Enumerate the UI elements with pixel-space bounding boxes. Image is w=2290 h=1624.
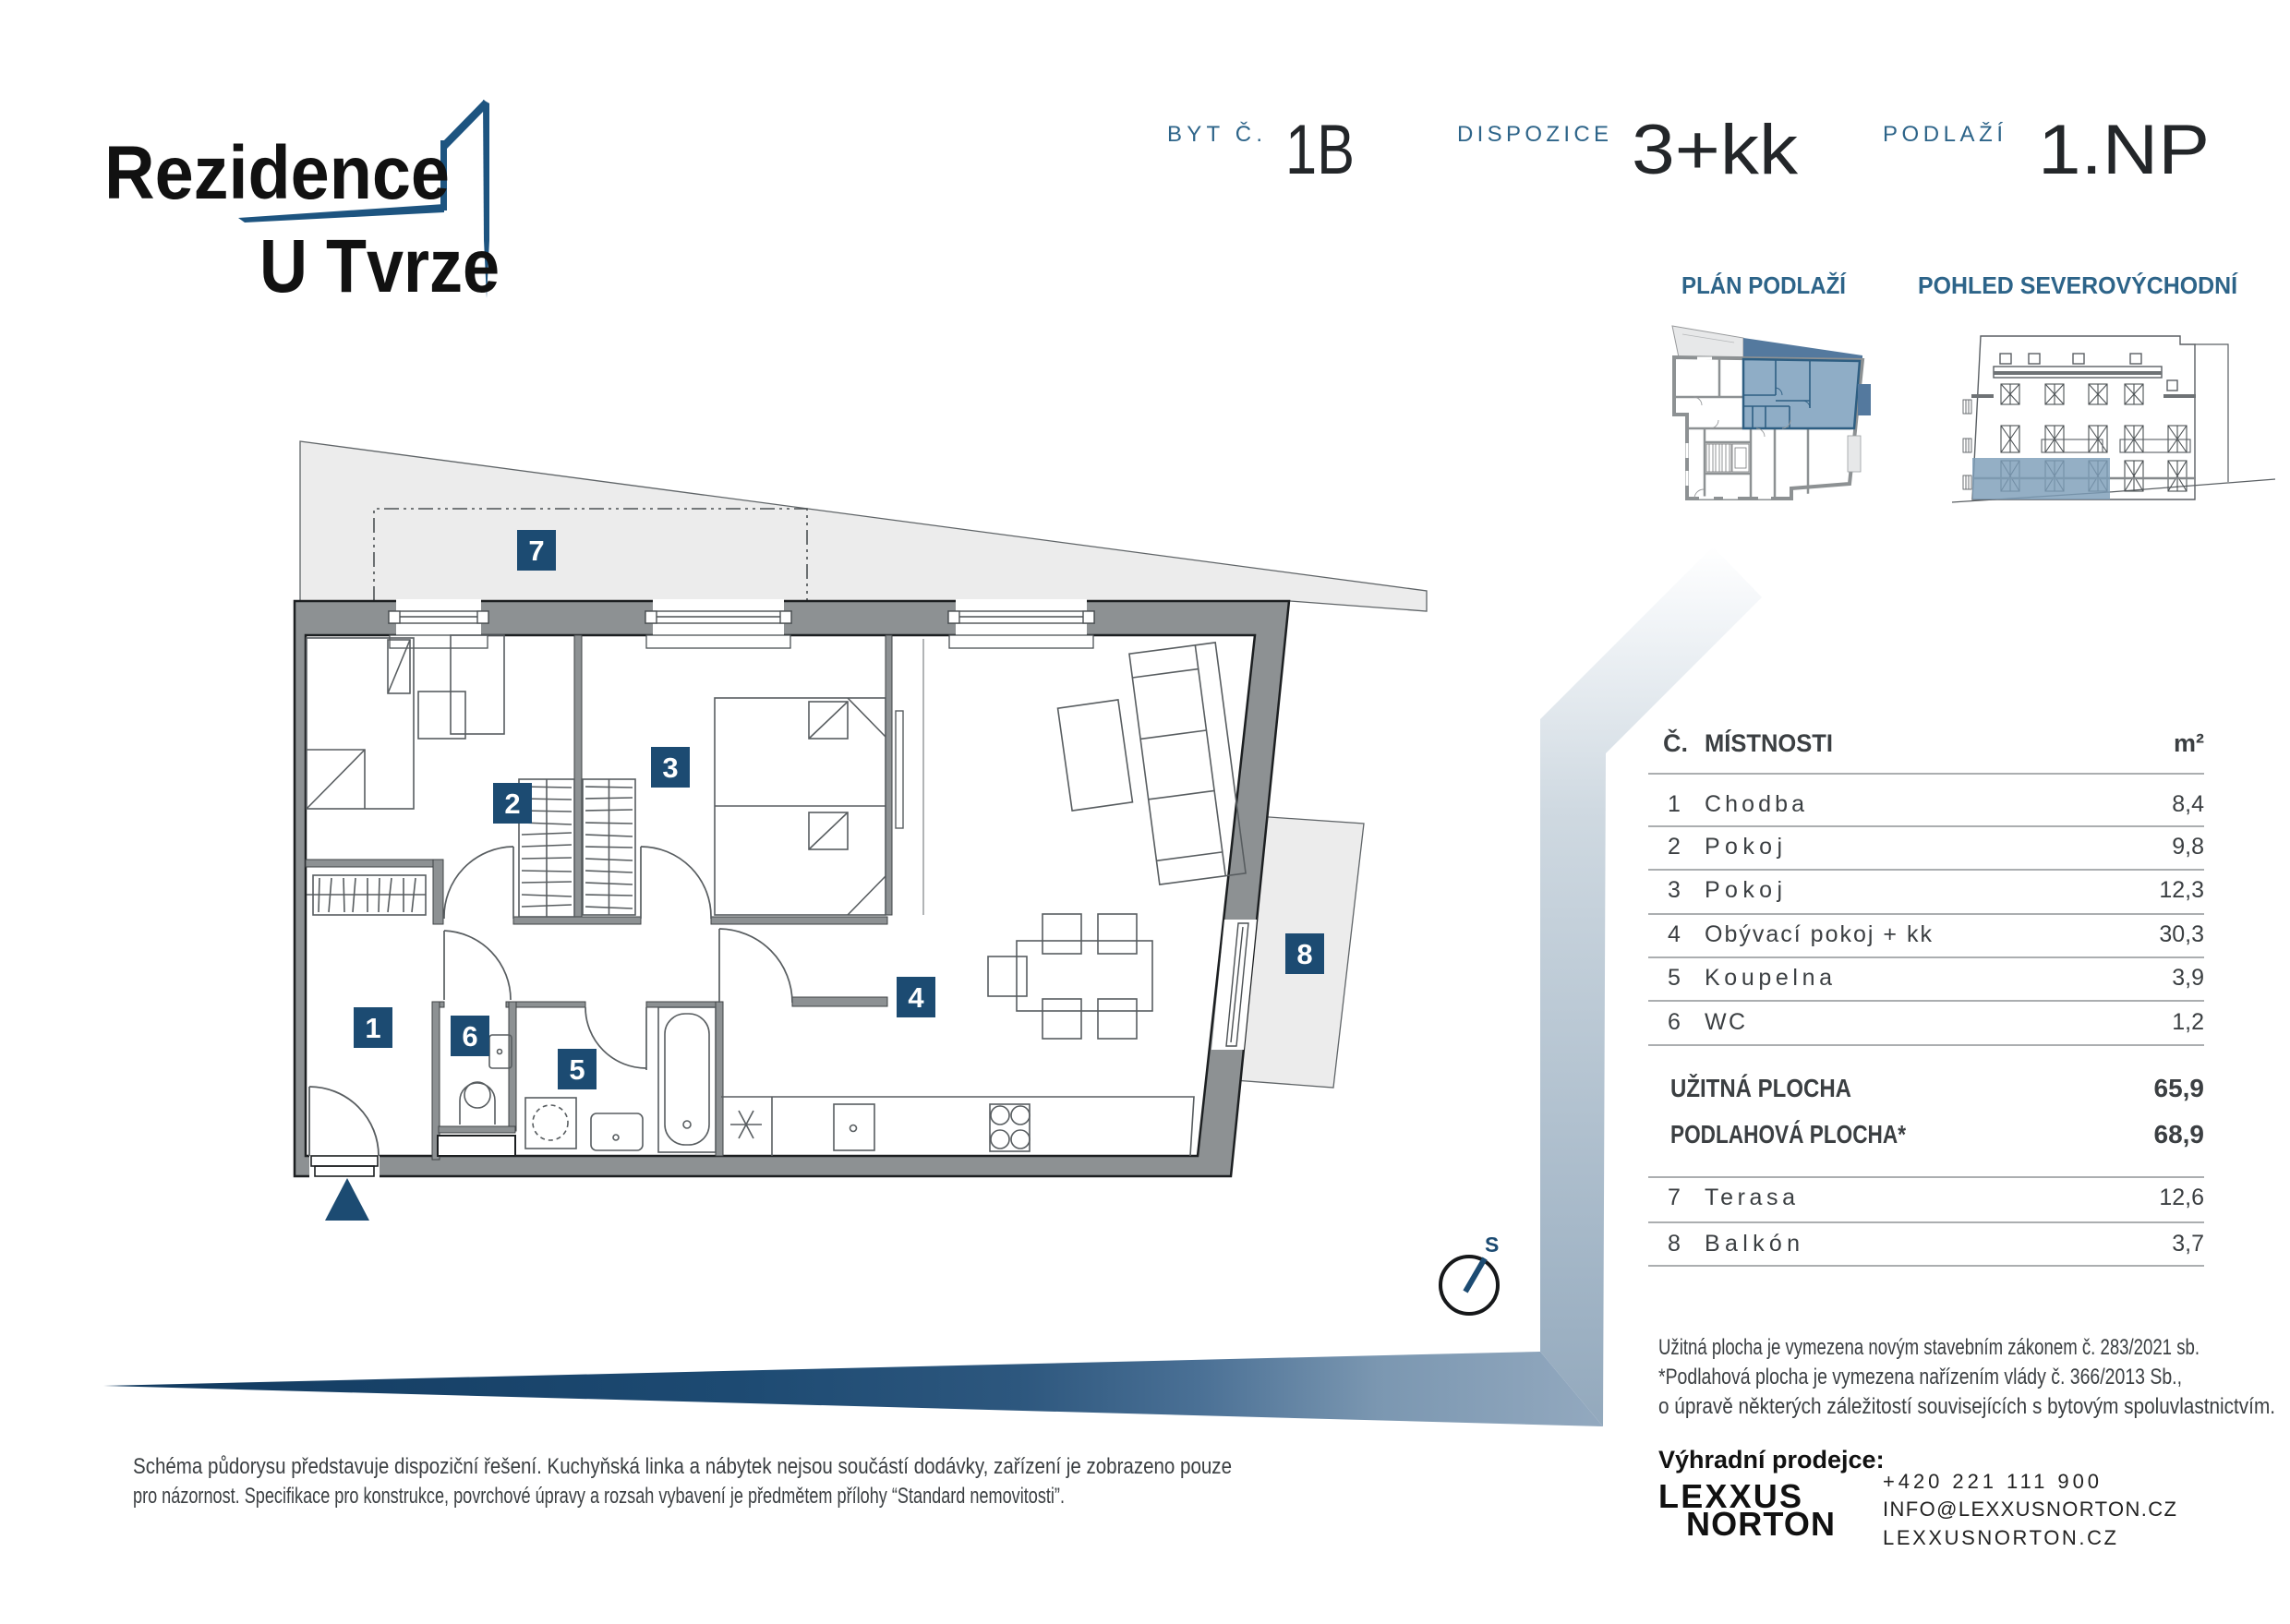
svg-text:6: 6 — [1668, 1009, 1681, 1035]
svg-text:12,3: 12,3 — [2159, 877, 2204, 903]
svg-text:*Podlahová plocha je vymezena: *Podlahová plocha je vymezena nařízením … — [1658, 1365, 2182, 1389]
svg-text:68,9: 68,9 — [2154, 1120, 2205, 1149]
svg-text:12,6: 12,6 — [2159, 1185, 2204, 1210]
svg-text:7: 7 — [528, 535, 544, 567]
svg-text:S: S — [1485, 1233, 1499, 1257]
svg-text:POHLED SEVEROVÝCHODNÍ: POHLED SEVEROVÝCHODNÍ — [1918, 271, 2238, 299]
svg-text:4: 4 — [1668, 921, 1681, 947]
svg-text:7: 7 — [1668, 1185, 1681, 1210]
svg-text:2: 2 — [1668, 834, 1681, 860]
svg-text:65,9: 65,9 — [2154, 1074, 2205, 1102]
svg-text:LEXXUSNORTON.CZ: LEXXUSNORTON.CZ — [1883, 1526, 2116, 1549]
svg-text:1,2: 1,2 — [2172, 1009, 2204, 1035]
svg-text:3,9: 3,9 — [2172, 965, 2204, 991]
svg-text:m²: m² — [2174, 729, 2204, 757]
svg-text:1: 1 — [365, 1012, 380, 1044]
svg-text:Pokoj: Pokoj — [1705, 834, 1782, 860]
svg-text:Koupelna: Koupelna — [1705, 965, 1832, 991]
svg-text:3: 3 — [662, 752, 678, 784]
svg-text:Rezidence: Rezidence — [104, 131, 450, 215]
svg-text:1: 1 — [1668, 791, 1681, 817]
svg-text:5: 5 — [1668, 965, 1681, 991]
svg-text:BYT Č.: BYT Č. — [1167, 121, 1262, 147]
svg-text:U Tvrze: U Tvrze — [259, 224, 500, 308]
svg-text:Užitná plocha je vymezena nový: Užitná plocha je vymezena novým stavební… — [1658, 1335, 2200, 1360]
svg-text:30,3: 30,3 — [2159, 921, 2204, 947]
svg-text:3,7: 3,7 — [2172, 1231, 2204, 1257]
svg-text:PLÁN PODLAŽÍ: PLÁN PODLAŽÍ — [1681, 271, 1847, 299]
svg-text:5: 5 — [569, 1053, 585, 1086]
svg-text:Č.: Č. — [1663, 728, 1688, 757]
svg-text:PODLAHOVÁ PLOCHA*: PODLAHOVÁ PLOCHA* — [1670, 1120, 1906, 1149]
svg-text:Výhradní prodejce:: Výhradní prodejce: — [1658, 1446, 1885, 1474]
svg-text:1.NP: 1.NP — [2038, 111, 2210, 189]
svg-text:Pokoj: Pokoj — [1705, 877, 1782, 903]
svg-text:8,4: 8,4 — [2172, 791, 2204, 817]
svg-text:1B: 1B — [1285, 111, 1355, 189]
svg-text:UŽITNÁ PLOCHA: UŽITNÁ PLOCHA — [1670, 1074, 1851, 1102]
svg-text:NORTON: NORTON — [1686, 1505, 1835, 1543]
svg-text:pro názornost. Specifikace pro: pro názornost. Specifikace pro konstrukc… — [133, 1484, 1065, 1509]
svg-text:6: 6 — [462, 1020, 477, 1053]
svg-text:8: 8 — [1296, 938, 1312, 970]
svg-text:3+kk: 3+kk — [1632, 111, 1799, 189]
svg-text:+420 221 111 900: +420 221 111 900 — [1883, 1470, 2099, 1493]
svg-text:9,8: 9,8 — [2172, 834, 2204, 860]
svg-text:WC: WC — [1705, 1009, 1745, 1035]
svg-text:o úpravě některých záležitostí: o úpravě některých záležitostí souvisejí… — [1658, 1394, 2275, 1419]
svg-text:Obývací pokoj + kk: Obývací pokoj + kk — [1705, 921, 1933, 947]
svg-text:2: 2 — [504, 788, 520, 820]
svg-text:4: 4 — [908, 981, 924, 1014]
svg-text:Schéma půdorysu představuje di: Schéma půdorysu představuje dispoziční ř… — [133, 1454, 1232, 1479]
svg-text:INFO@LEXXUSNORTON.CZ: INFO@LEXXUSNORTON.CZ — [1883, 1498, 2176, 1521]
svg-text:8: 8 — [1668, 1231, 1681, 1257]
svg-text:DISPOZICE: DISPOZICE — [1457, 122, 1609, 147]
svg-text:3: 3 — [1668, 877, 1681, 903]
svg-text:MÍSTNOSTI: MÍSTNOSTI — [1705, 728, 1833, 757]
